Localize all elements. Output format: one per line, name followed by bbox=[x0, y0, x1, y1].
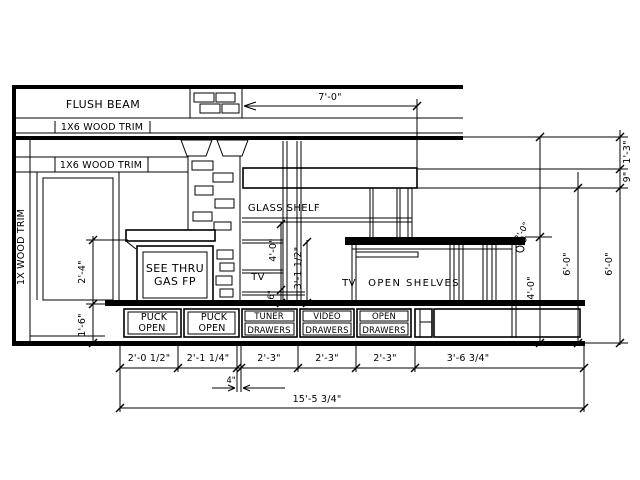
tv-console-label: TV bbox=[341, 278, 356, 289]
dim-mantel-height: 2'-4" bbox=[77, 260, 88, 284]
fireplace-label-2: GAS FP bbox=[154, 275, 196, 288]
dim-beam-to-soffit: 1'-3" bbox=[622, 140, 633, 164]
fireplace: SEE THRU GAS FP bbox=[126, 230, 215, 303]
cabinet-4-bottom-label: DRAWERS bbox=[305, 326, 348, 336]
cabinet-2-top-label: PUCK bbox=[201, 312, 228, 323]
dim-bench-height: 1'-6" bbox=[77, 313, 88, 337]
wood-trim-left-label: 1X WOOD TRIM bbox=[16, 209, 27, 285]
cabinet-3-top-label: TUNER bbox=[253, 312, 284, 322]
cabinet-2-bottom-label: OPEN bbox=[198, 323, 225, 334]
dim-counter-return: 2'-0" bbox=[513, 221, 532, 244]
dim-unit-height-b: 6'-0" bbox=[604, 252, 615, 276]
dim-post-width: 4" bbox=[226, 376, 235, 386]
dim-bay-6: 3'-6 3/4" bbox=[447, 353, 490, 364]
open-shelves-label: OPEN SHELVES bbox=[368, 278, 460, 289]
fireplace-label-1: SEE THRU bbox=[146, 262, 204, 275]
dim-bay-3: 2'-3" bbox=[257, 353, 281, 364]
dim-niche-height: 4'-0" bbox=[268, 238, 279, 262]
glass-shelf-label: GLASS SHELF bbox=[248, 203, 320, 214]
cabinet-5-bottom-label: DRAWERS bbox=[362, 326, 405, 336]
dim-soffit-height: 9" bbox=[622, 172, 633, 183]
dim-console-height: 4'-0" bbox=[526, 276, 537, 300]
cabinet-elevation-svg: FLUSH BEAM 1X6 WOOD TRIM 1X6 WOOD TRIM 1… bbox=[0, 0, 640, 480]
dim-niche-small: 6" bbox=[267, 290, 277, 299]
elevation-drawing: FLUSH BEAM 1X6 WOOD TRIM 1X6 WOOD TRIM 1… bbox=[0, 0, 640, 480]
tv-niche-label: TV bbox=[250, 272, 265, 283]
dim-overall-width: 15'-5 3/4" bbox=[293, 394, 342, 405]
dim-top-width: 7'-0" bbox=[318, 92, 342, 103]
wood-trim-mid-label: 1X6 WOOD TRIM bbox=[60, 160, 142, 171]
cabinet-4-top-label: VIDEO bbox=[313, 312, 341, 322]
cabinet-3-bottom-label: DRAWERS bbox=[247, 326, 290, 336]
beam-and-trim: FLUSH BEAM 1X6 WOOD TRIM 1X6 WOOD TRIM bbox=[12, 85, 463, 346]
flush-beam-label: FLUSH BEAM bbox=[66, 98, 140, 111]
dim-bay-1: 2'-0 1/2" bbox=[128, 353, 171, 364]
soffit-and-upper-shelves bbox=[243, 99, 417, 237]
dim-bay-5: 2'-3" bbox=[373, 353, 397, 364]
dim-bay-2: 2'-1 1/4" bbox=[187, 353, 230, 364]
dim-unit-height-a: 6'-0" bbox=[562, 252, 573, 276]
cabinet-5-top-label: OPEN bbox=[372, 312, 396, 322]
cabinet-1-top-label: PUCK bbox=[141, 312, 168, 323]
dim-bay-4: 2'-3" bbox=[315, 353, 339, 364]
base-cabinets: PUCK OPEN PUCK OPEN TUNER DRAWERS VIDEO … bbox=[12, 300, 585, 346]
wood-trim-top-label: 1X6 WOOD TRIM bbox=[61, 122, 143, 133]
glass-shelf-niche: GLASS SHELF TV bbox=[242, 141, 412, 300]
dim-niche-inner: 3'-1 1/2" bbox=[293, 247, 304, 290]
cabinet-1-bottom-label: OPEN bbox=[138, 323, 165, 334]
